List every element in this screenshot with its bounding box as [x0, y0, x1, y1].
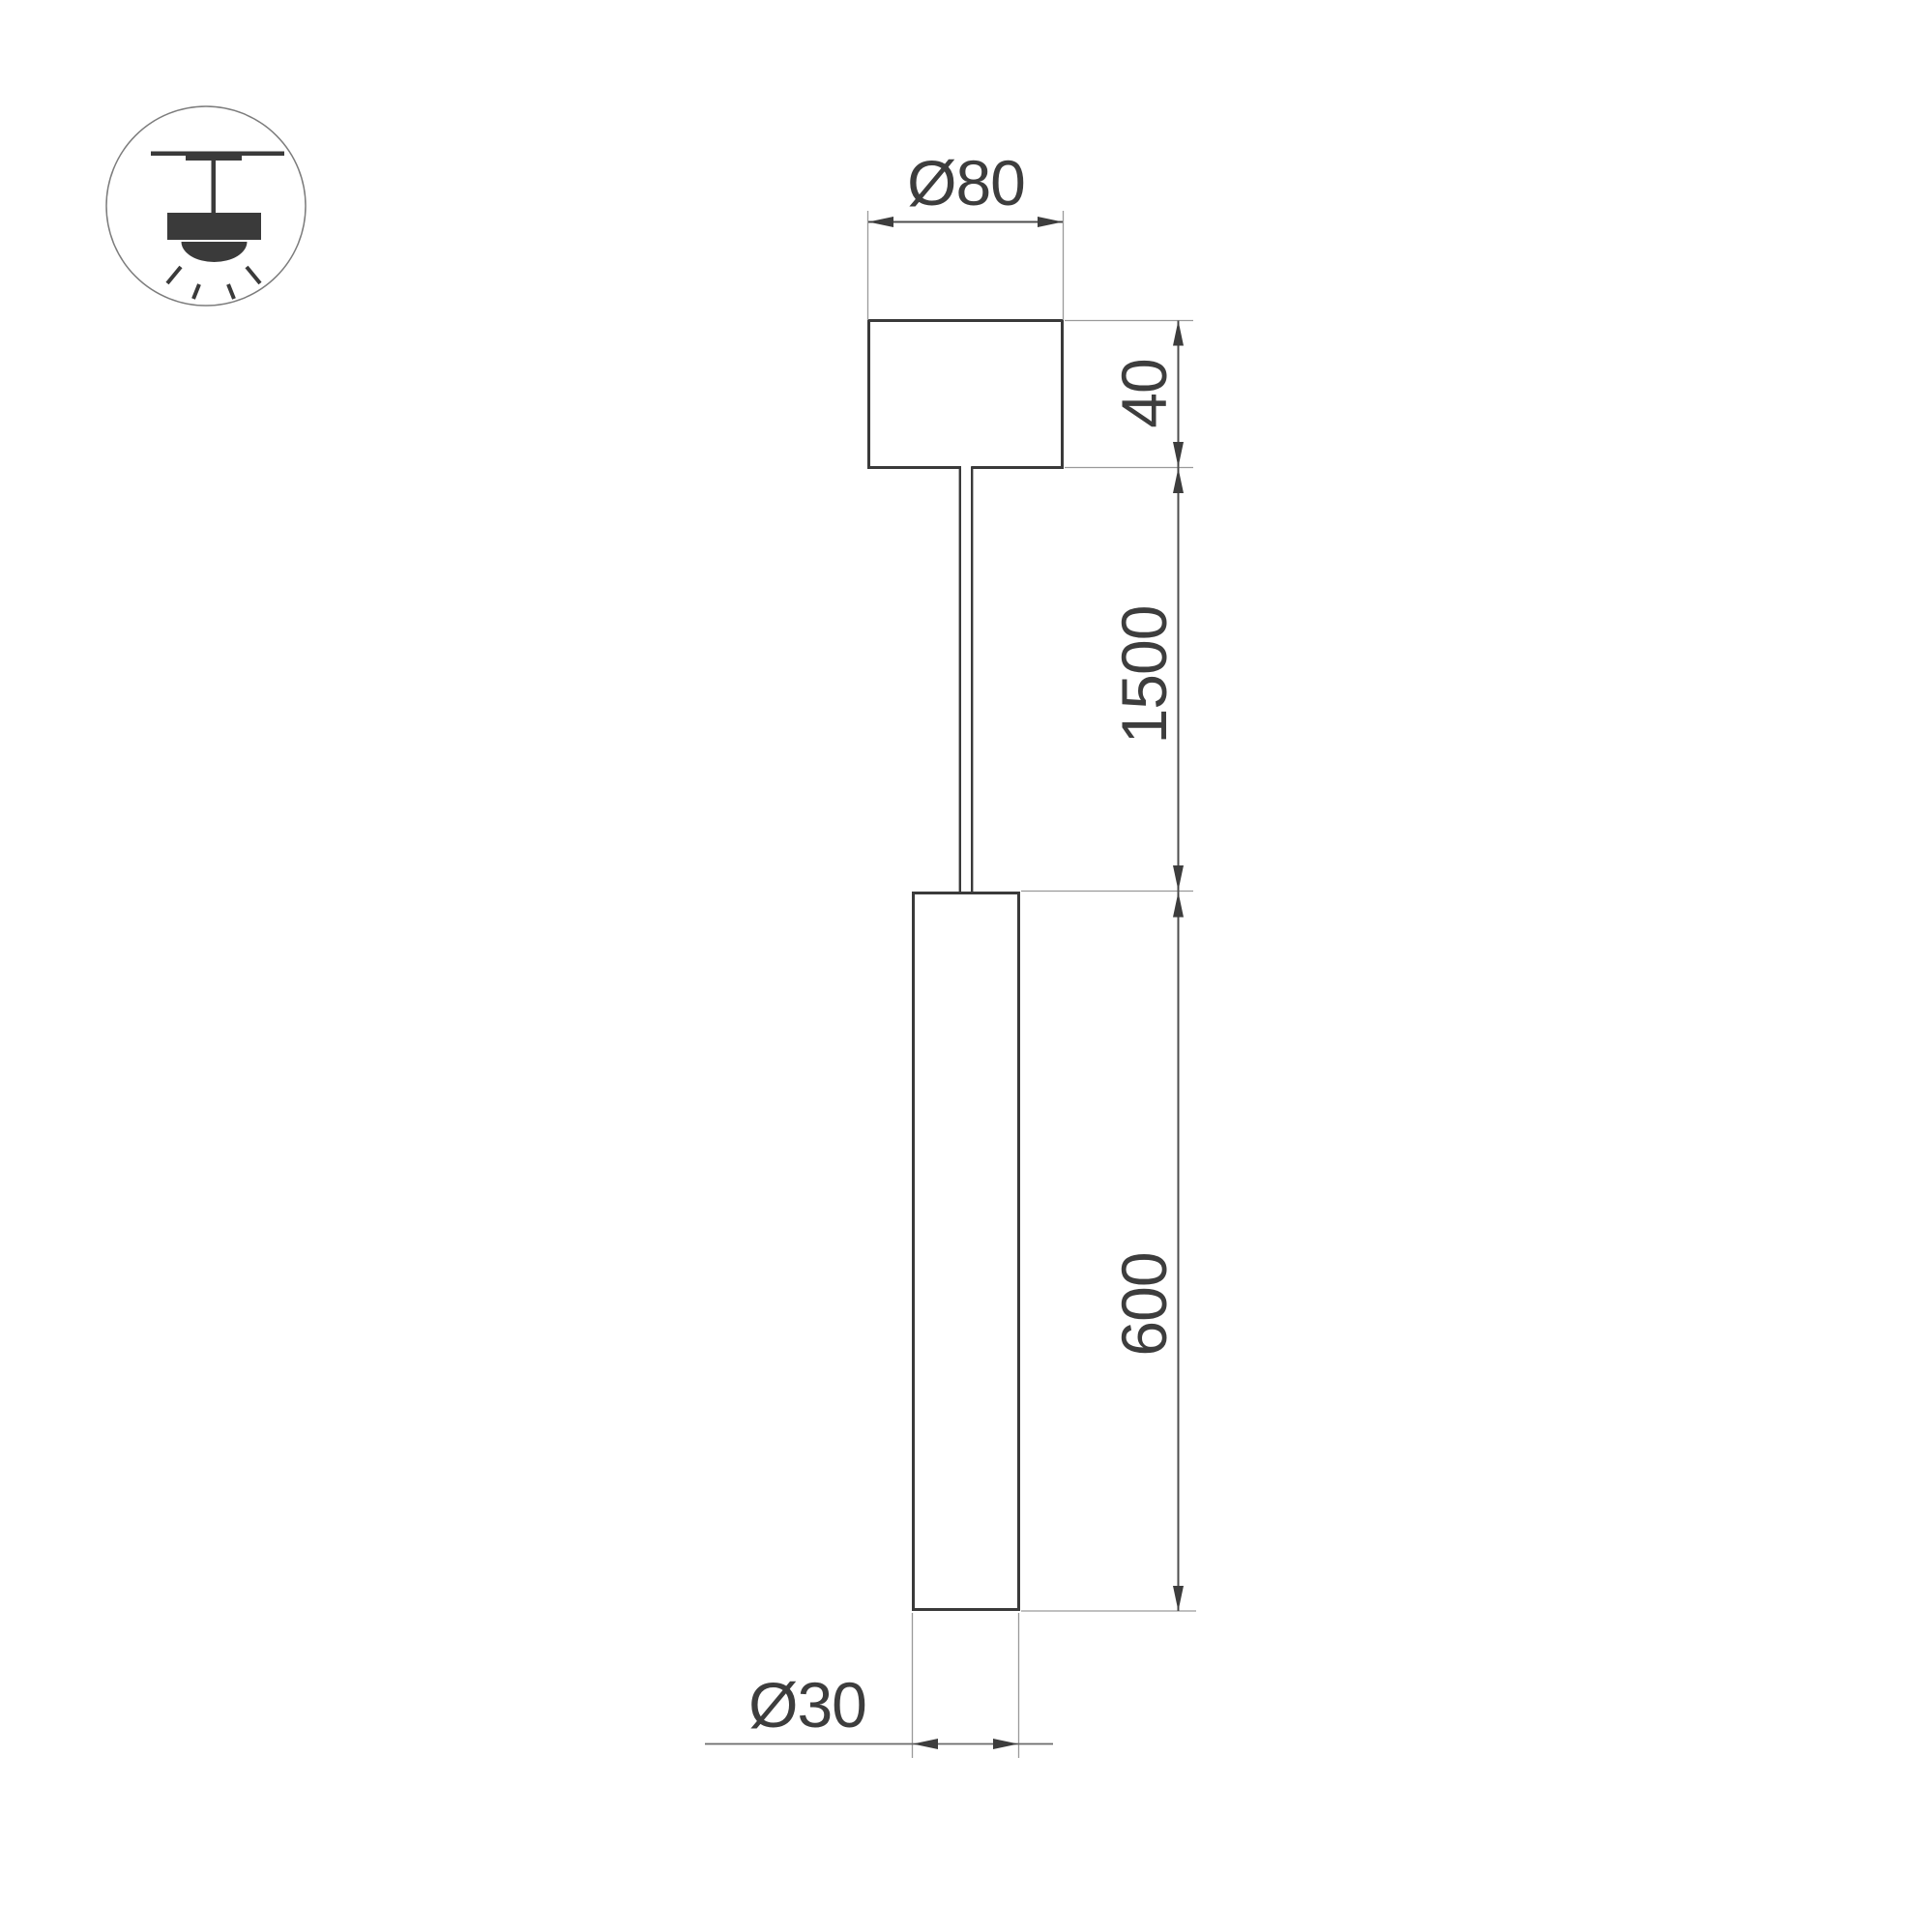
lamp-tube-outline [914, 893, 1019, 1610]
arrow-up-icon [1173, 321, 1184, 346]
icon-light-ray [247, 267, 260, 283]
drawing-canvas: Ø80 40 1500 600 [0, 0, 1932, 1932]
canopy-outline [869, 321, 1063, 468]
dim-canopy-diameter: Ø80 [868, 147, 1064, 320]
icon-light-ray [167, 267, 181, 283]
pendant-light-dimension-drawing: Ø80 40 1500 600 [0, 0, 1932, 1932]
dim-label-lamp-diameter: Ø30 [748, 1669, 866, 1741]
arrow-left-icon [913, 1739, 938, 1749]
dim-label-lamp-length: 600 [1108, 1252, 1180, 1356]
arrow-down-icon [1173, 865, 1184, 891]
icon-lamp-body [167, 213, 261, 240]
icon-light-ray [228, 284, 234, 299]
pendant-lamp-mounting-icon [106, 106, 306, 306]
dim-label-canopy-height: 40 [1108, 359, 1180, 427]
icon-circle [106, 106, 306, 306]
arrow-up-icon [1173, 468, 1184, 493]
arrow-down-icon [1173, 442, 1184, 467]
arrow-right-icon [993, 1739, 1018, 1749]
dim-lamp-diameter: Ø30 [705, 1613, 1053, 1758]
dim-label-canopy-diameter: Ø80 [907, 147, 1025, 219]
arrow-right-icon [1038, 217, 1063, 227]
suspension-wire [960, 465, 972, 893]
suspension-wire-core [961, 465, 971, 893]
arrow-up-icon [1173, 893, 1184, 918]
arrow-left-icon [868, 217, 893, 227]
dim-label-suspension-length: 1500 [1108, 606, 1180, 745]
dim-vertical-chain: 40 1500 600 [1021, 321, 1196, 1612]
icon-lamp-dome [182, 242, 248, 262]
icon-light-ray [193, 284, 199, 299]
icon-ceiling-line [151, 152, 284, 157]
arrow-down-icon [1173, 1586, 1184, 1611]
icon-suspension-stem [212, 160, 217, 214]
